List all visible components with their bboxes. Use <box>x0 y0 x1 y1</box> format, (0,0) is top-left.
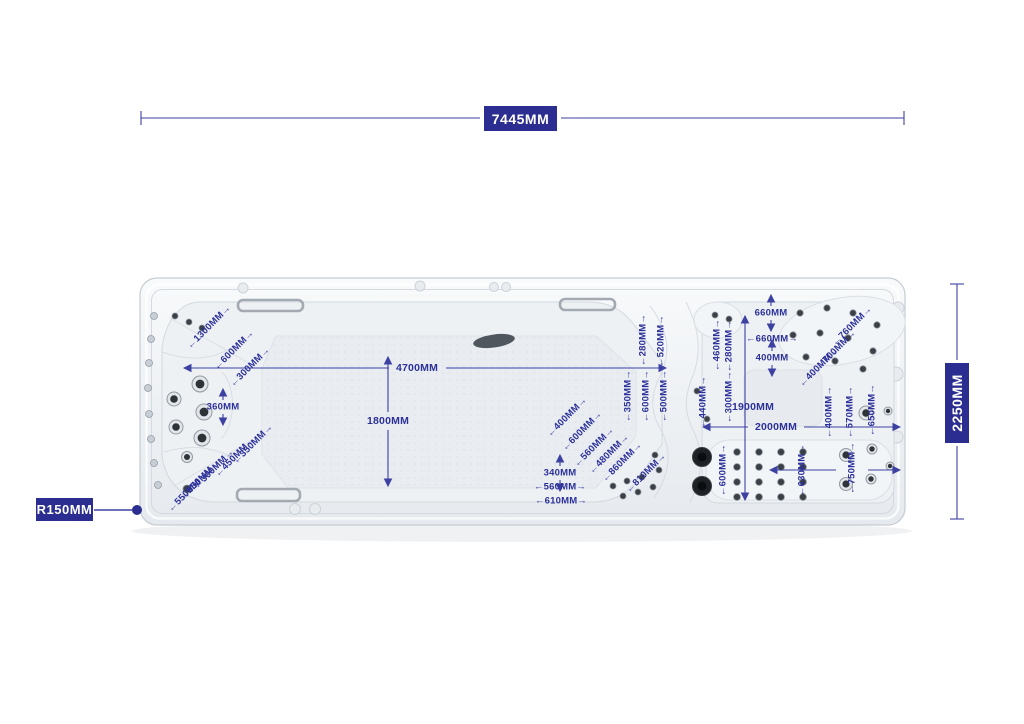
dimension-label: ←280MM→ <box>724 320 735 372</box>
dimension-label: ←600MM→ <box>641 370 652 422</box>
dimension-label: 1900MM <box>732 401 774 413</box>
dimension-label: 400MM <box>756 353 789 364</box>
dimension-label: ←500MM→ <box>659 370 670 422</box>
dimension-label: ←660MM→ <box>746 334 798 345</box>
dimension-label: ←440MM→ <box>698 376 709 428</box>
dimension-label: 1800MM <box>367 415 409 427</box>
dimension-label: 340MM <box>544 468 577 479</box>
overall-width-label: 2250MM <box>945 363 969 443</box>
dimension-label: 660MM <box>755 308 788 319</box>
dimension-label: 360MM <box>207 402 240 413</box>
dimension-label: ←520MM→ <box>656 315 667 367</box>
dimension-label: ←280MM→ <box>638 314 649 366</box>
dimension-label: ←600MM→ <box>718 444 729 496</box>
dimension-label: ←400MM→ <box>824 386 835 438</box>
dimension-label: ←570MM→ <box>845 386 856 438</box>
dimension-label: ←750MM→ <box>847 442 858 494</box>
dimension-label: ←610MM→ <box>535 496 587 507</box>
dimension-label: ←460MM→ <box>712 319 723 371</box>
dimension-label: ←350MM→ <box>623 370 634 422</box>
radius-leader-line <box>94 505 142 515</box>
dimension-label: ←630MM→ <box>797 444 808 496</box>
corner-radius-label: R150MM <box>36 498 93 521</box>
dimension-label: 4700MM <box>396 362 438 374</box>
dimension-label: ←560MM→ <box>534 482 586 493</box>
dimension-label: ←300MM→ <box>724 371 735 423</box>
overall-length-label: 7445MM <box>484 106 557 131</box>
dimension-label: ←650MM→ <box>867 384 878 436</box>
dimension-label: 2000MM <box>755 421 797 433</box>
swim-spa-dimension-diagram: 7445MM 2250MM R150MM ←1300MM→←600MM→←300… <box>0 0 1024 724</box>
